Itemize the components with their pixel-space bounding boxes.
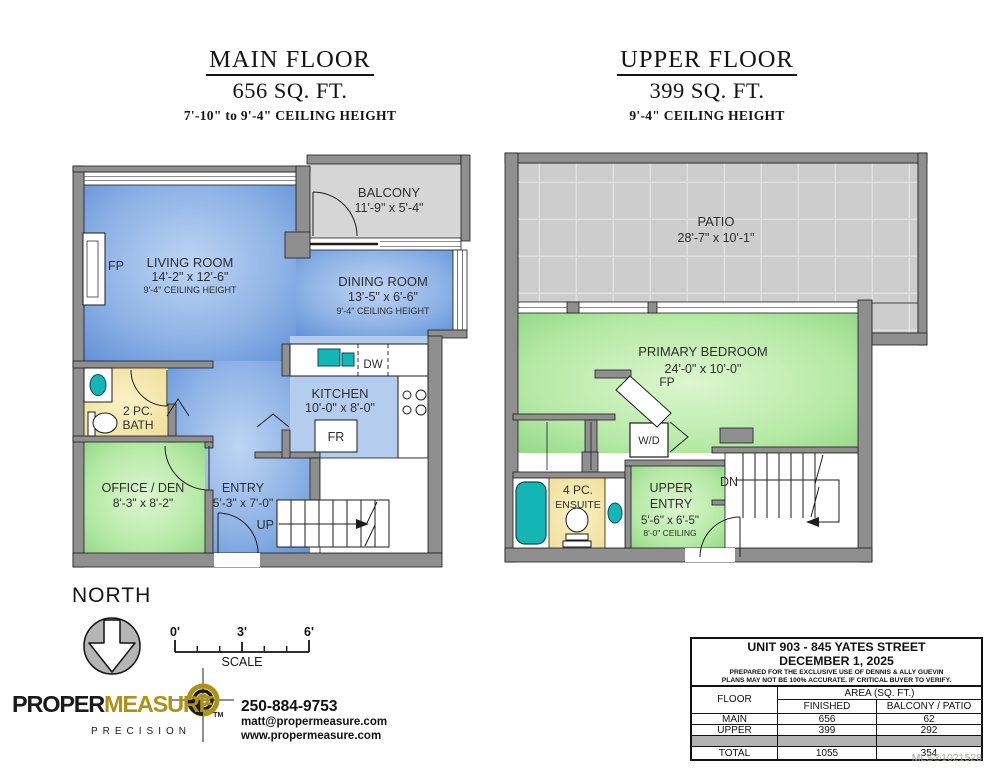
floor-plan-sheet: MAIN FLOOR 656 SQ. FT. 7'-10" to 9'-4" C… <box>0 0 994 768</box>
phone-number: 250-884-9753 <box>241 698 387 716</box>
propermeasure-logo: PROPERMEASURETM PRECISION <box>10 666 242 750</box>
scale-tick-0: 0' <box>170 625 180 639</box>
patio-dims: 28'-7" x 10'-1" <box>678 231 755 245</box>
logo-proper: PROPER <box>12 691 105 717</box>
fp-label: FP <box>108 259 124 273</box>
upper-entry-label-1: UPPER <box>649 481 692 495</box>
disclaimer-line-2: PLANS MAY NOT BE 100% ACCURATE. IF CRITI… <box>692 677 981 685</box>
unit-address: UNIT 903 - 845 YATES STREET <box>692 639 981 655</box>
upper-fp-label: FP <box>659 375 674 389</box>
ensuite-label-1: 4 PC. <box>563 483 593 497</box>
bathtub-icon <box>513 478 549 548</box>
upper-floor-plan: PATIO 28'-7" x 10'-1" PRIMARY BEDROOM 24… <box>503 146 933 570</box>
balcony-dims: 11'-9" x 5'-4" <box>354 201 423 215</box>
email-address: matt@propermeasure.com <box>241 716 387 730</box>
logo-precision: PRECISION <box>91 726 191 737</box>
main-floor-header: MAIN FLOOR 656 SQ. FT. 7'-10" to 9'-4" C… <box>120 46 460 124</box>
scale-bar: 0' 3' 6' SCALE <box>163 624 333 670</box>
main-floor-plan: BALCONY 11'-9" x 5'-4" LIVING ROOM 14'-2… <box>68 146 478 570</box>
main-floor-ceiling: 7'-10" to 9'-4" CEILING HEIGHT <box>120 108 460 124</box>
row-total-label: TOTAL <box>692 746 778 759</box>
area-info-table: UNIT 903 - 845 YATES STREET DECEMBER 1, … <box>690 637 983 761</box>
primary-bedroom-label: PRIMARY BEDROOM <box>638 344 768 359</box>
row-main-floor: MAIN <box>692 713 778 724</box>
ensuite-vanity <box>605 478 625 548</box>
logo-tm: TM <box>213 712 223 719</box>
fr-label: FR <box>328 430 345 444</box>
row-main-finished: 656 <box>778 713 877 724</box>
svg-text:PROPERMEASURETM: PROPERMEASURETM <box>12 691 223 719</box>
bath-label-1: 2 PC. <box>123 404 153 418</box>
main-floor-area: 656 SQ. FT. <box>120 78 460 104</box>
living-room-dims: 14'-2" x 12'-6" <box>152 270 229 284</box>
patio-label: PATIO <box>697 214 734 229</box>
logo-measure: MEASURE <box>104 691 214 717</box>
bath-sink-icon <box>84 368 112 402</box>
stairs-down <box>725 453 858 548</box>
scale-tick-6: 6' <box>304 625 314 639</box>
header-balcony-patio: BALCONY / PATIO <box>877 700 981 713</box>
stove-icon <box>398 376 428 458</box>
row-upper-balcony: 292 <box>877 724 981 735</box>
wd-label: W/D <box>638 435 659 447</box>
up-label: UP <box>257 518 274 532</box>
website-url: www.propermeasure.com <box>241 730 387 744</box>
ensuite-label-2: ENSUITE <box>555 499 601 511</box>
mls-number: MLS®1021528 <box>862 752 982 764</box>
living-room-label: LIVING ROOM <box>147 255 234 270</box>
main-floor-title: MAIN FLOOR <box>120 46 460 74</box>
dining-room-ceiling: 9'-4" CEILING HEIGHT <box>337 306 430 316</box>
living-room-ceiling: 9'-4" CEILING HEIGHT <box>144 285 237 295</box>
dining-room-dims: 13'-5" x 6'-6" <box>348 290 418 304</box>
scale-tick-3: 3' <box>237 625 247 639</box>
upper-floor-ceiling: 9'-4" CEILING HEIGHT <box>537 108 877 124</box>
fireplace-icon <box>83 233 105 305</box>
entry-dims: 5'-3" x 7'-0" <box>213 496 273 510</box>
office-den-label: OFFICE / DEN <box>102 481 185 495</box>
header-finished: FINISHED <box>778 700 877 713</box>
stairs-up <box>277 500 389 547</box>
row-main-balcony: 62 <box>877 713 981 724</box>
balcony-label: BALCONY <box>358 185 420 200</box>
header-floor: FLOOR <box>692 687 778 713</box>
kitchen-label: KITCHEN <box>311 386 368 401</box>
plan-date: DECEMBER 1, 2025 <box>692 655 981 669</box>
primary-bedroom-dims: 24'-0" x 10'-0" <box>665 362 742 376</box>
row-upper-floor: UPPER <box>692 724 778 735</box>
north-label: NORTH <box>72 584 151 608</box>
upper-floor-header: UPPER FLOOR 399 SQ. FT. 9'-4" CEILING HE… <box>537 46 877 124</box>
ensuite-sink-icon <box>608 503 622 523</box>
upper-entry-dims: 5'-6" x 6'-5" <box>641 515 699 527</box>
contact-block: 250-884-9753 matt@propermeasure.com www.… <box>241 698 387 743</box>
bath-label-2: BATH <box>122 418 153 432</box>
dn-label: DN <box>720 475 738 489</box>
upper-entry-ceiling: 8'-0" CEILING <box>643 528 696 538</box>
disclaimer-line-1: PREPARED FOR THE EXCLUSIVE USE OF DENNIS… <box>692 669 981 677</box>
primary-bedroom-area <box>518 313 858 453</box>
header-area: AREA (SQ. FT.) <box>778 687 981 700</box>
dw-label: DW <box>363 359 382 371</box>
dining-room-label: DINING ROOM <box>338 274 428 289</box>
kitchen-dims: 10'-0" x 8'-0" <box>305 401 375 415</box>
kitchen-counter <box>290 344 428 376</box>
upper-windows <box>518 302 858 313</box>
row-upper-finished: 399 <box>778 724 877 735</box>
upper-entry-label-2: ENTRY <box>650 497 693 511</box>
upper-floor-area: 399 SQ. FT. <box>537 78 877 104</box>
entry-label: ENTRY <box>222 481 265 495</box>
upper-floor-title: UPPER FLOOR <box>537 46 877 74</box>
kitchen-sink-icon <box>318 349 340 366</box>
office-den-dims: 8'-3" x 8'-2" <box>113 496 173 510</box>
area-grid: FLOOR AREA (SQ. FT.) FINISHED BALCONY / … <box>692 685 981 759</box>
